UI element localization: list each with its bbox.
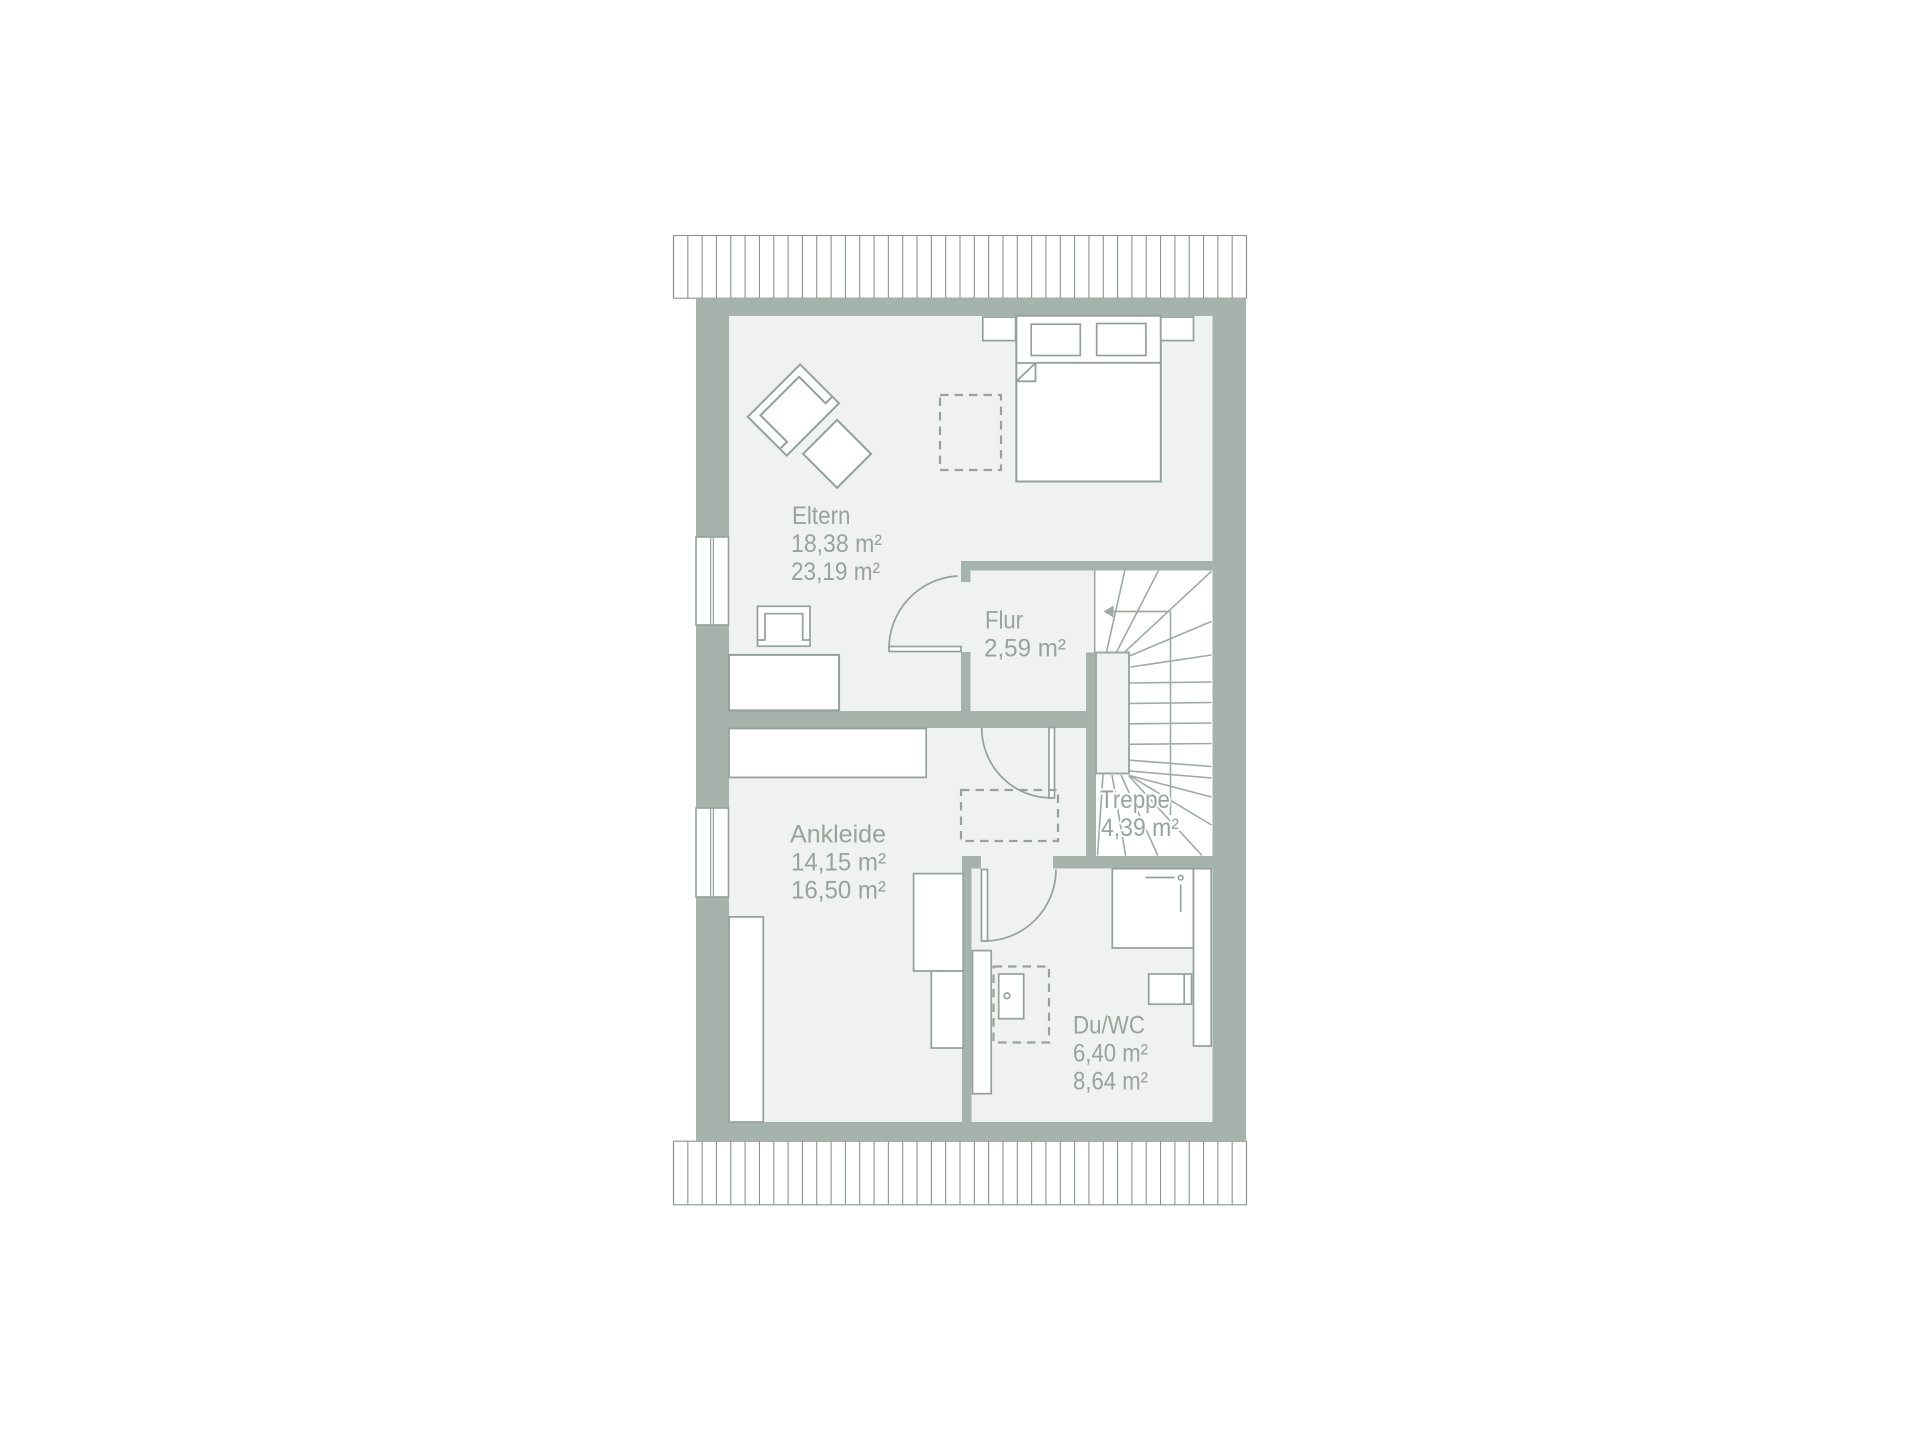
svg-text:14,15 m²: 14,15 m² — [791, 849, 886, 877]
svg-text:Ankleide: Ankleide — [790, 821, 886, 849]
svg-text:6,40 m²: 6,40 m² — [1073, 1040, 1148, 1068]
svg-text:8,64 m²: 8,64 m² — [1073, 1068, 1148, 1096]
svg-text:Treppe: Treppe — [1100, 786, 1170, 814]
svg-text:2,59 m²: 2,59 m² — [984, 635, 1066, 663]
svg-text:23,19 m²: 23,19 m² — [791, 558, 880, 586]
svg-text:18,38 m²: 18,38 m² — [791, 530, 882, 558]
svg-text:Flur: Flur — [985, 607, 1023, 635]
svg-text:16,50 m²: 16,50 m² — [791, 877, 886, 905]
svg-text:Eltern: Eltern — [792, 502, 851, 530]
svg-text:4,39 m²: 4,39 m² — [1101, 814, 1179, 842]
svg-text:Du/WC: Du/WC — [1073, 1012, 1145, 1040]
